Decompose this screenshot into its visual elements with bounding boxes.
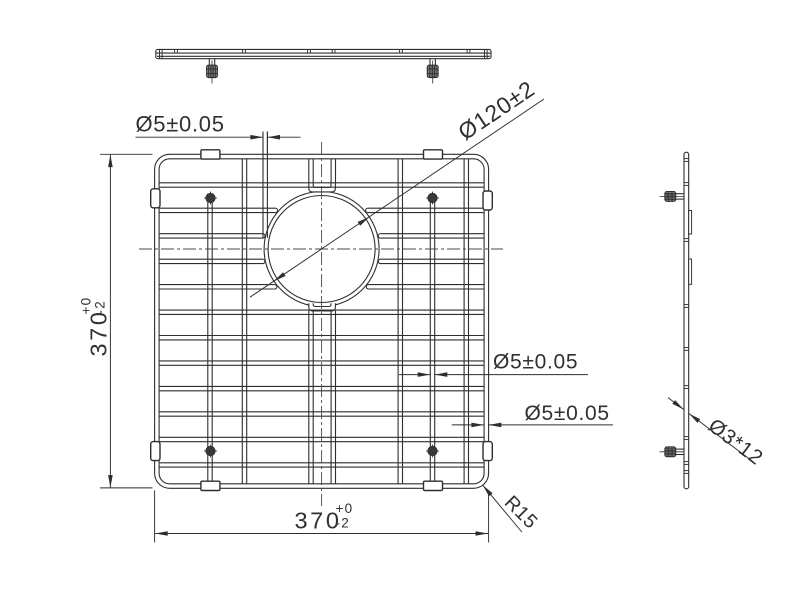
svg-text:+0: +0 (336, 501, 354, 516)
svg-text:-2: -2 (336, 515, 351, 530)
svg-text:Ø5±0.05: Ø5±0.05 (525, 402, 610, 425)
svg-text:Ø5±0.05: Ø5±0.05 (493, 350, 578, 373)
svg-text:Ø5±0.05: Ø5±0.05 (136, 112, 225, 137)
svg-text:370: 370 (295, 507, 342, 533)
svg-text:+0: +0 (79, 297, 94, 315)
svg-text:-2: -2 (93, 300, 108, 315)
svg-text:370: 370 (86, 309, 112, 356)
